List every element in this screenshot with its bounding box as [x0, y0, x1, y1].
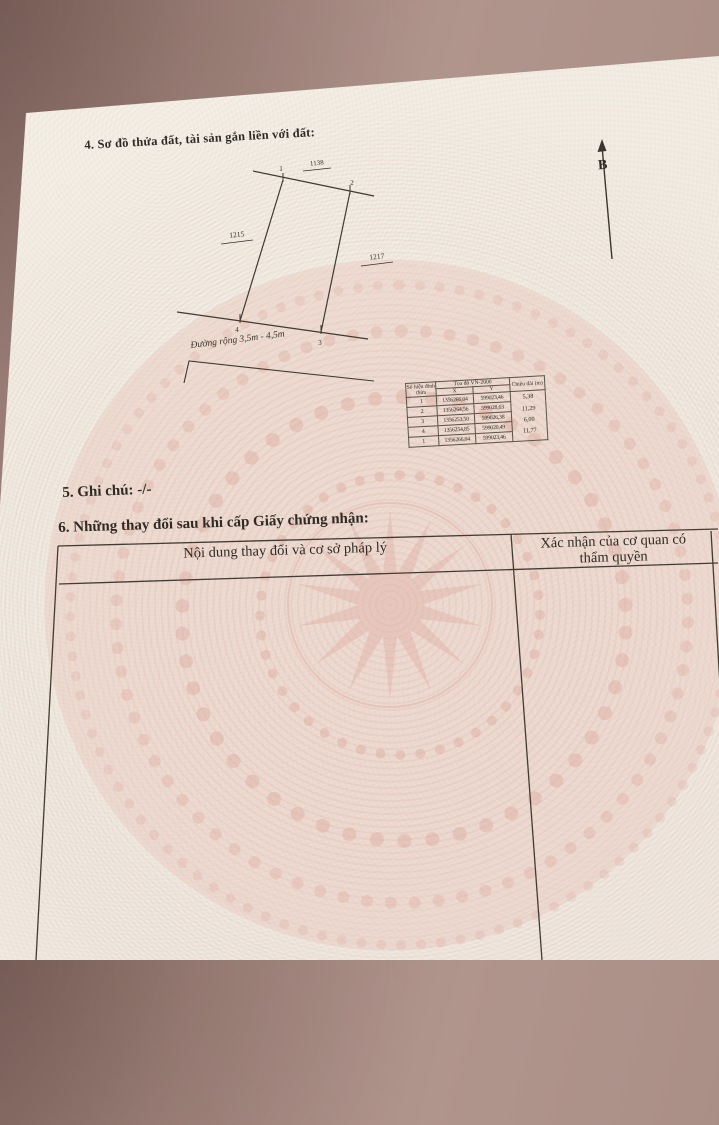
watermark-drum-rings [0, 85, 719, 1125]
drum-star-ring [288, 503, 492, 707]
compass-north-label: B [597, 158, 608, 174]
coordinate-table: Số hiệu đỉnh thửa Tọa độ VN-2000 Chiều d… [405, 375, 548, 448]
watermark-figure-ring-3 [110, 325, 694, 909]
coord-cell: 1 [409, 436, 440, 448]
vertex-label-2: 2 [350, 179, 354, 187]
changes-table-lines [36, 529, 719, 960]
parcel-number-right: 1217 [369, 251, 385, 261]
coord-cell: 599023,46 [475, 432, 513, 444]
coord-cell: 1356266,04 [439, 434, 477, 446]
watermark-figure-ring-4 [65, 280, 719, 950]
parcel-number-top: 1138 [310, 158, 325, 167]
parcel-number-left: 1215 [229, 229, 245, 239]
north-arrow-icon [598, 139, 613, 259]
changes-col1-header: Nội dung thay đổi và cơ sở pháp lý [70, 536, 500, 566]
vertex-label-4: 4 [235, 326, 239, 334]
length-value: 5,38 [511, 393, 545, 402]
road-width-label: Đường rộng 3,5m - 4,5m [190, 329, 285, 350]
length-value: 11,29 [511, 404, 545, 413]
coord-length-column: 5,38 11,29 6,00 11,77 [510, 390, 548, 442]
section5-note: 5. Ghi chú: -/- [62, 482, 152, 502]
vertex-label-3: 3 [318, 339, 322, 347]
watermark-guilloche-ring [0, 85, 719, 1125]
section6-title: 6. Những thay đổi sau khi cấp Giấy chứng… [58, 510, 369, 537]
watermark-pink-disc [45, 260, 719, 950]
watermark-figure-ring-2 [175, 390, 633, 848]
changes-col2-header: Xác nhận của cơ quan có thẩm quyền [527, 531, 700, 569]
vertex-label-1: 1 [279, 165, 283, 173]
parcel-diagram [177, 171, 374, 383]
certificate-page: B 1 2 3 4 1138 1215 1217 [0, 0, 719, 960]
section4-title: 4. Sơ đồ thửa đất, tài sản gắn liền với … [84, 125, 315, 153]
length-value: 11,77 [513, 426, 547, 435]
length-value: 6,00 [512, 415, 546, 424]
photo-canvas: { "page": { "section4_title": "4. Sơ đồ … [0, 0, 719, 960]
